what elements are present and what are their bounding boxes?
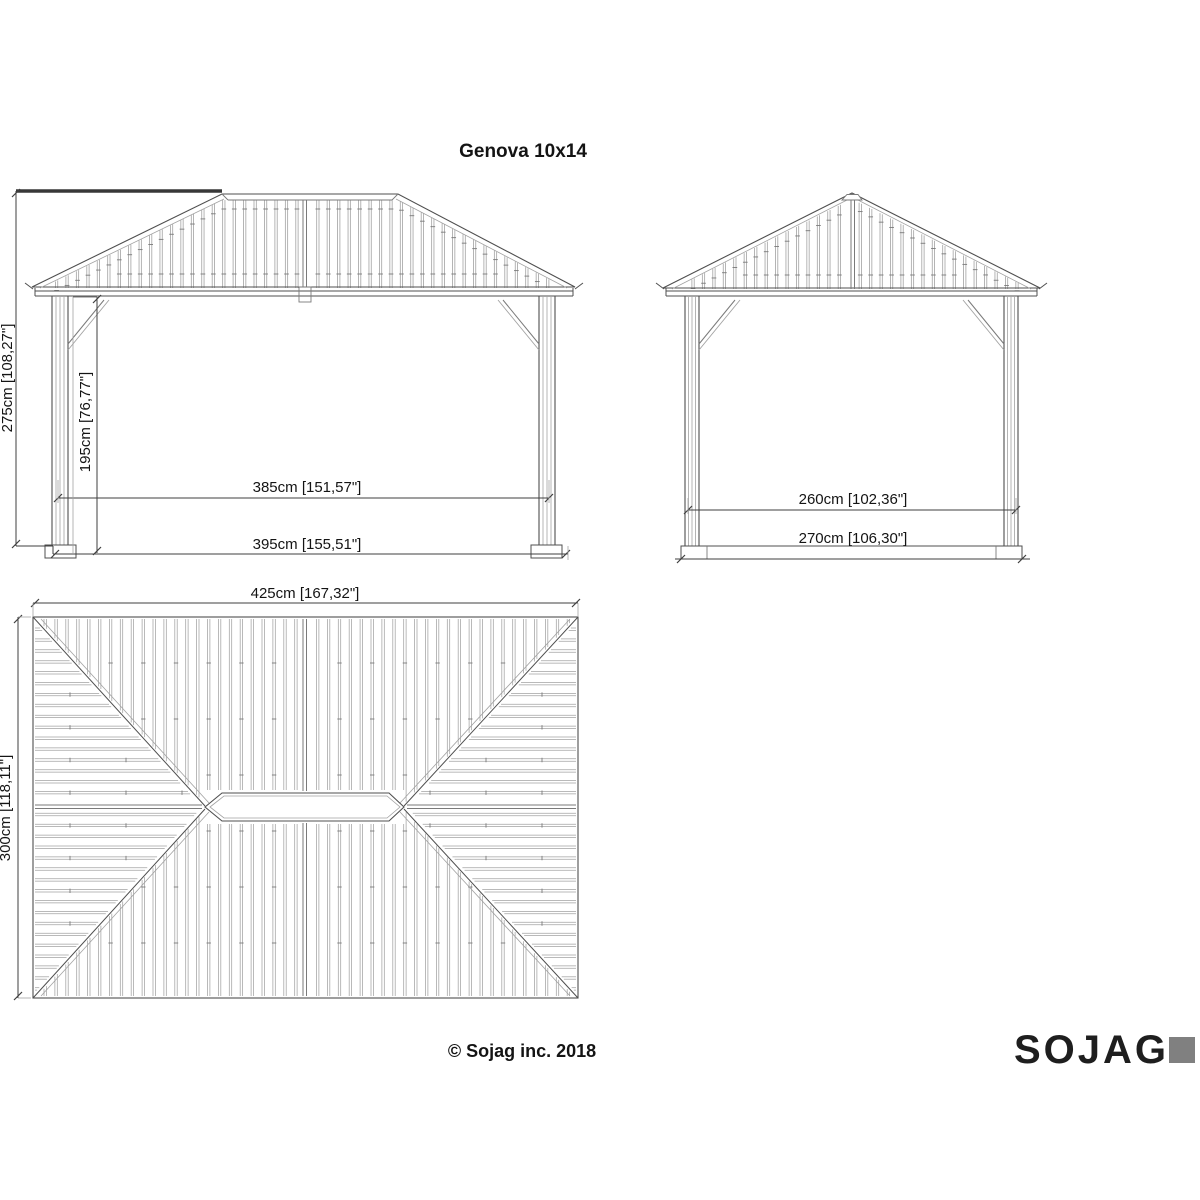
dim-front-outer-width: 395cm [155,51"] [253,536,362,553]
roof-plan-view [14,599,580,1000]
dim-front-inner-width: 385cm [151,57"] [253,479,362,496]
dim-plan-roof-width: 425cm [167,32"] [251,585,360,602]
brand-logo: SOJAG [1014,1028,1200,1072]
brand-wordmark: SOJAG [1014,1028,1169,1072]
page-title: Genova 10x14 [459,141,587,162]
dim-side-outer-depth: 270cm [106,30"] [799,530,908,547]
copyright-text: © Sojag inc. 2018 [448,1041,596,1061]
brand-square-gray-icon [1169,1037,1195,1063]
dim-front-opening-height: 195cm [76,77"] [77,372,94,472]
gazebo-spec-sheet: Genova 10x14 275cm [108,27"] 195cm [76,7… [0,0,1200,1200]
dim-front-total-height: 275cm [108,27"] [0,324,16,433]
dim-side-inner-depth: 260cm [102,36"] [799,491,908,508]
dim-plan-roof-depth: 300cm [118,11"] [0,755,14,862]
front-elevation-view [12,189,583,560]
